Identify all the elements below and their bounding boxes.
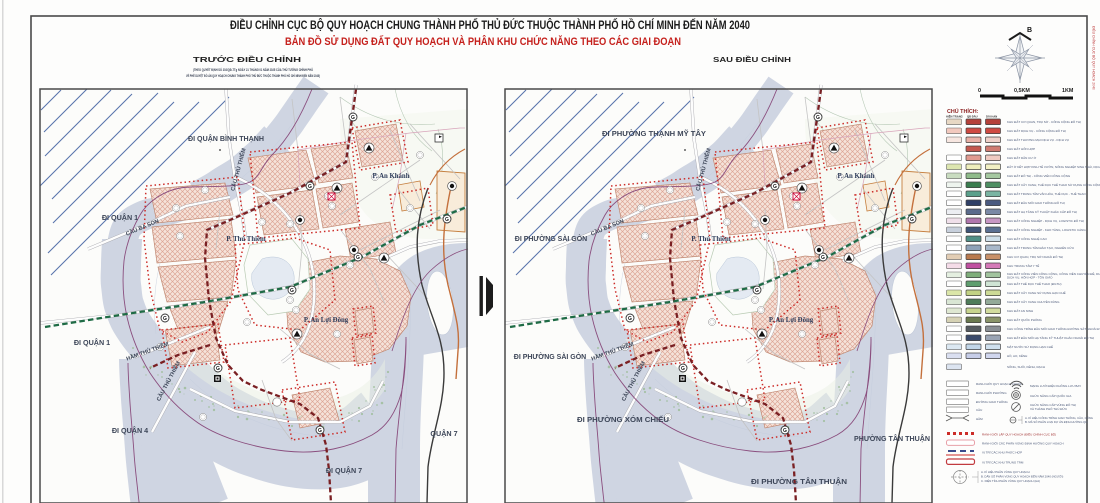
svg-text:KHU ĐẤT HỖN HỢP: KHU ĐẤT HỖN HỢP: [1007, 146, 1035, 151]
svg-text:RANH GIỚI PHƯỜNG: RANH GIỚI PHƯỜNG: [976, 390, 1007, 395]
svg-text:P. An Khánh: P. An Khánh: [838, 173, 875, 180]
svg-text:KHU ĐẤT CÔNG NGHIỆP - KHO TÀNG: KHU ĐẤT CÔNG NGHIỆP - KHO TÀNG, LOGISTIC…: [1007, 227, 1086, 232]
svg-text:ĐI QUẬN 4: ĐI QUẬN 4: [112, 426, 148, 435]
svg-text:ĐI QUẬN 1: ĐI QUẬN 1: [102, 213, 138, 222]
svg-text:G: G: [910, 217, 914, 223]
svg-text:0,5KM: 0,5KM: [1014, 88, 1030, 94]
svg-text:A. KÍ HIỆU PHÂN VÙNG QUY HOẠCH: A. KÍ HIỆU PHÂN VÙNG QUY HOẠCH: [981, 469, 1030, 474]
svg-text:PHƯỜNG TÂN THUẬN: PHƯỜNG TÂN THUẬN: [854, 434, 930, 443]
svg-text:C. DIỆN TÍCH PHÂN VÙNG QUY HOẠ: C. DIỆN TÍCH PHÂN VÙNG QUY HOẠCH (HA): [981, 478, 1040, 483]
svg-text:(THEO QUYẾT ĐỊNH SỐ 202/QĐ-TTg: (THEO QUYẾT ĐỊNH SỐ 202/QĐ-TTg NGÀY 21 T…: [193, 67, 313, 72]
svg-text:DÀI HẠN: DÀI HẠN: [986, 114, 997, 119]
svg-text:DỊCH VỤ, HỖN HỢP - TÔN GIÁO: DỊCH VỤ, HỖN HỢP - TÔN GIÁO: [1007, 275, 1053, 280]
svg-text:KHU ĐẤT AN NINH: KHU ĐẤT AN NINH: [1007, 308, 1033, 313]
svg-text:P. An Lợi Đông: P. An Lợi Đông: [304, 317, 349, 324]
svg-text:KHU ĐẤT ĐẦU MỐI GIAO THÔNG ĐÔ: KHU ĐẤT ĐẦU MỐI GIAO THÔNG ĐÔ THỊ: [1007, 200, 1065, 205]
svg-text:SAU ĐIỀU CHỈNH: SAU ĐIỀU CHỈNH: [713, 54, 791, 64]
svg-text:ĐI PHƯỜNG SÀI GÒN: ĐI PHƯỜNG SÀI GÒN: [514, 352, 586, 361]
svg-text:SÔNG, SUỐI, KÊNH, RẠCH: SÔNG, SUỐI, KÊNH, RẠCH: [1007, 364, 1045, 369]
svg-text:ĐI PHƯỜNG THẠNH MỸ TÂY: ĐI PHƯỜNG THẠNH MỸ TÂY: [602, 129, 706, 138]
svg-text:G: G: [351, 115, 355, 121]
svg-text:MẠNG LƯỚI ĐIỆN KHÔNG LƯU BAY: MẠNG LƯỚI ĐIỆN KHÔNG LƯU BAY: [1030, 383, 1081, 388]
svg-text:VỊ TRÍ CÁC KHU TRUNG TÂM: VỊ TRÍ CÁC KHU TRUNG TÂM: [982, 460, 1024, 465]
svg-text:HẦM: HẦM: [976, 417, 983, 421]
svg-text:ĐI QUẬN 7: ĐI QUẬN 7: [326, 466, 362, 475]
svg-text:KHU ĐẤT DÂN CƯ Ở: KHU ĐẤT DÂN CƯ Ở: [1007, 155, 1037, 160]
svg-text:KHU ĐẤT HẠ TẦNG KỸ THUẬT KHÁC: KHU ĐẤT HẠ TẦNG KỸ THUẬT KHÁC CẤP ĐÔ THỊ: [1007, 209, 1077, 214]
svg-text:P. An Lợi Đông: P. An Lợi Đông: [769, 317, 814, 324]
svg-text:KHU ĐẤT CÔNG NGHIỆP - DỊCH VỤ,: KHU ĐẤT CÔNG NGHIỆP - DỊCH VỤ, LOGISTIC …: [1007, 218, 1084, 223]
svg-text:CHÚ THÍCH:: CHÚ THÍCH:: [947, 107, 979, 115]
svg-text:KHU ĐẤT CÂY XANH, THỂ DỤC THỂ: KHU ĐẤT CÂY XANH, THỂ DỤC THỂ THAO SỬ DỤ…: [1007, 182, 1100, 187]
svg-text:KHU ĐẤT CÂY XANH SỬ DỤNG HẠN C: KHU ĐẤT CÂY XANH SỬ DỤNG HẠN CHẾ: [1007, 290, 1066, 295]
svg-text:P. Thủ Thiêm: P. Thủ Thiêm: [226, 236, 266, 243]
svg-text:ĐẤT Ở KẾT HỢP KINH TẾ VƯỜN, NÔ: ĐẤT Ở KẾT HỢP KINH TẾ VƯỜN, NÔNG NGHIỆP …: [1007, 164, 1100, 169]
svg-text:ĐIỀU CHỈNH CỤC BỘ QUY HOẠCH CH: ĐIỀU CHỈNH CỤC BỘ QUY HOẠCH CHUNG THÀNH …: [230, 18, 750, 32]
svg-text:G: G: [816, 115, 820, 121]
svg-text:KHU ĐẤT THƯƠNG MẠI DỊCH VỤ - D: KHU ĐẤT THƯƠNG MẠI DỊCH VỤ - DỊCH VỤ: [1007, 137, 1069, 142]
svg-text:KHU ĐẤT DỊCH VỤ - CÔNG CỘNG ĐÔ: KHU ĐẤT DỊCH VỤ - CÔNG CỘNG ĐÔ THỊ: [1007, 128, 1066, 133]
svg-text:VỀ PHÊ DUYỆT ĐỒ ÁN QUY HOẠCH C: VỀ PHÊ DUYỆT ĐỒ ÁN QUY HOẠCH CHUNG THÀNH…: [186, 73, 321, 78]
svg-text:VỊ TRÍ CÁC KHU PHỨC HỢP: VỊ TRÍ CÁC KHU PHỨC HỢP: [982, 450, 1022, 455]
svg-text:KHU ĐẤT CÔNG NGHỆ CAO: KHU ĐẤT CÔNG NGHỆ CAO: [1007, 236, 1047, 241]
svg-text:G: G: [290, 288, 294, 294]
svg-text:KHU ĐẤT TRUNG TÂM ĐÀO TẠO, NGH: KHU ĐẤT TRUNG TÂM ĐÀO TẠO, NGHIÊN CỨU: [1007, 245, 1074, 250]
svg-text:TRƯỚC ĐIỀU CHỈNH: TRƯỚC ĐIỀU CHỈNH: [193, 54, 301, 64]
svg-text:KHU CƠ QUAN, TRỤ SỞ NGOÀI ĐÔ T: KHU CƠ QUAN, TRỤ SỞ NGOÀI ĐÔ THỊ: [1007, 254, 1063, 259]
svg-text:KHU ĐẤT QUỐC PHÒNG: KHU ĐẤT QUỐC PHÒNG: [1007, 317, 1042, 322]
svg-text:KHU ĐẤT ĐÔ THỊ - CÔNG VIÊN CÔN: KHU ĐẤT ĐÔ THỊ - CÔNG VIÊN CÔNG CỘNG: [1007, 173, 1071, 178]
svg-text:QĐ ĐẦU: QĐ ĐẦU: [967, 115, 978, 119]
svg-text:RANH GIỚI QUY HOẠCH CHUNG: RANH GIỚI QUY HOẠCH CHUNG: [976, 381, 1023, 386]
svg-text:B. MÃ SỐ PHÂN LOẠI DỰ ÁN ĐỊNH: B. MÃ SỐ PHÂN LOẠI DỰ ÁN ĐỊNH HƯỚNG QH: [1025, 419, 1087, 424]
svg-text:P. Thủ Thiêm: P. Thủ Thiêm: [691, 236, 731, 243]
svg-text:ĐƯỜNG GIAO THÔNG: ĐƯỜNG GIAO THÔNG: [976, 399, 1008, 404]
svg-text:RANH GIỚI LẬP QUY HOẠCH (ĐIỀU: RANH GIỚI LẬP QUY HOẠCH (ĐIỀU CHỈNH CỤC …: [982, 432, 1056, 437]
svg-text:ĐIỀU CHỈNH CỤC BỘ QUY HOẠCH 20: ĐIỀU CHỈNH CỤC BỘ QUY HOẠCH 2040: [1092, 26, 1097, 90]
svg-text:G: G: [163, 316, 167, 322]
svg-text:RANH GIỚI CÁC PHÂN VÙNG ĐỊNH H: RANH GIỚI CÁC PHÂN VÙNG ĐỊNH HƯỚNG QUY H…: [982, 441, 1064, 446]
svg-text:G: G: [308, 184, 312, 190]
svg-text:ĐI QUẬN 1: ĐI QUẬN 1: [74, 338, 110, 347]
svg-text:B. DÂN SỐ PHÂN VÙNG QUY HOẠCH: B. DÂN SỐ PHÂN VÙNG QUY HOẠCH ĐẾN NĂM 20…: [981, 474, 1063, 479]
svg-text:CHỨC NĂNG CẤP QUỐC GIA: CHỨC NĂNG CẤP QUỐC GIA: [1030, 393, 1071, 398]
svg-text:MẶT NƯỚC SỬ DỤNG HẠN CHẾ: MẶT NƯỚC SỬ DỤNG HẠN CHẾ: [1007, 344, 1053, 349]
svg-text:KHU CÔNG TRÌNH ĐẦU MỐI GIAO TH: KHU CÔNG TRÌNH ĐẦU MỐI GIAO THÔNG ĐƯỜNG …: [1007, 326, 1100, 331]
svg-text:ĐI PHƯỜNG SÀI GÒN: ĐI PHƯỜNG SÀI GÒN: [515, 234, 587, 243]
svg-text:P. An Khánh: P. An Khánh: [373, 173, 410, 180]
svg-text:VÀ THÀNH PHỐ THỦ ĐỨC: VÀ THÀNH PHỐ THỦ ĐỨC: [1030, 406, 1068, 411]
svg-text:KHU TRUNG TÂM Y TẾ: KHU TRUNG TÂM Y TẾ: [1007, 263, 1039, 268]
svg-text:G: G: [356, 255, 360, 261]
svg-text:ĐI PHƯỜNG TÂN THUẬN: ĐI PHƯỜNG TÂN THUẬN: [751, 477, 847, 486]
svg-text:HỒ, AO, KÊNH: HỒ, AO, KÊNH: [1007, 353, 1027, 358]
svg-text:G: G: [821, 255, 825, 261]
svg-text:B: B: [1027, 27, 1032, 34]
svg-text:KHU ĐẤT CƠ QUAN, TRỤ SỞ - CÔNG: KHU ĐẤT CƠ QUAN, TRỤ SỞ - CÔNG CỘNG ĐÔ T…: [1007, 119, 1081, 124]
svg-text:CẦU: CẦU: [976, 408, 982, 412]
svg-text:G: G: [628, 316, 632, 322]
svg-text:KHU ĐẤT THỂ DỤC THỂ THAO (ĐGTH: KHU ĐẤT THỂ DỤC THỂ THAO (ĐGTH): [1007, 281, 1061, 286]
svg-text:1KM: 1KM: [1062, 88, 1074, 94]
svg-text:G: G: [318, 428, 322, 434]
svg-text:QUẬN 7: QUẬN 7: [430, 429, 457, 438]
svg-text:0: 0: [978, 88, 981, 94]
svg-text:KHU ĐẤT CÂY XANH CHUYÊN DÙNG: KHU ĐẤT CÂY XANH CHUYÊN DÙNG: [1007, 299, 1060, 304]
svg-text:ĐI QUẬN BÌNH THẠNH: ĐI QUẬN BÌNH THẠNH: [188, 134, 264, 143]
svg-text:KHU ĐẤT ĐẦU MỐI HẠ TẦNG KỸ THU: KHU ĐẤT ĐẦU MỐI HẠ TẦNG KỸ THUẬT KHÁC NG…: [1007, 335, 1094, 340]
svg-text:G: G: [681, 366, 685, 372]
svg-text:BẢN ĐỒ SỬ DỤNG ĐẤT QUY HOẠCH V: BẢN ĐỒ SỬ DỤNG ĐẤT QUY HOẠCH VÀ PHÂN KHU…: [285, 35, 681, 48]
svg-text:G: G: [755, 288, 759, 294]
svg-text:G: G: [773, 184, 777, 190]
svg-text:G: G: [445, 217, 449, 223]
svg-text:KHU ĐẤT TRUNG TÂM VĂN HÓA, THỂ: KHU ĐẤT TRUNG TÂM VĂN HÓA, THỂ DỤC - THỂ…: [1007, 191, 1086, 196]
svg-text:G: G: [783, 428, 787, 434]
svg-text:G: G: [216, 366, 220, 372]
